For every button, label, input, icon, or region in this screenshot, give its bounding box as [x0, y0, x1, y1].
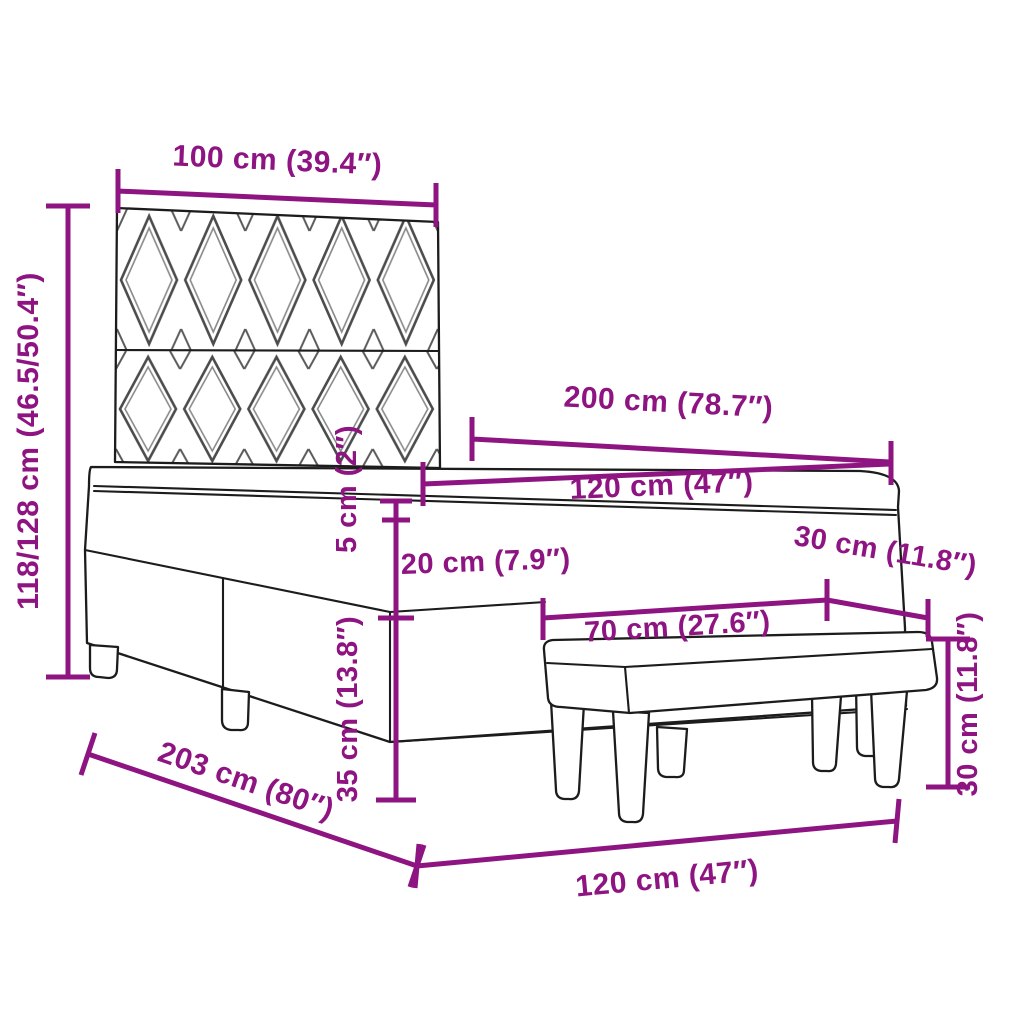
dim-label-total-height: 118/128 cm (46.5/50.4″): [12, 272, 45, 610]
headboard-pattern-bottom: [115, 350, 440, 468]
dim-frame-length: 203 cm (80″): [81, 733, 424, 887]
headboard: [115, 208, 440, 468]
dim-label-base-height: 35 cm (13.8″): [332, 616, 364, 802]
diagram-canvas: 100 cm (39.4″) 118/128 cm (46.5/50.4″) 2…: [0, 0, 1024, 1024]
dim-label-topper-height: 5 cm (2″): [331, 425, 363, 553]
headboard-pattern-top: [116, 208, 439, 351]
headboard-seam: [116, 350, 439, 351]
dim-bench-height: 30 cm (11.8″): [926, 612, 984, 797]
dim-label-bed-length: 200 cm (78.7″): [563, 381, 774, 425]
bench-leg-front-right: [871, 689, 907, 787]
bench-leg-back-left: [551, 701, 584, 799]
bench-leg-back-right: [812, 694, 841, 771]
dim-label-headboard-width: 100 cm (39.4″): [172, 139, 383, 181]
bed-leg-foot-left: [657, 727, 687, 777]
bed-leg-front-middle: [222, 689, 249, 730]
dim-total-height: 118/128 cm (46.5/50.4″): [12, 206, 90, 677]
dim-label-mattress-height: 20 cm (7.9″): [400, 543, 571, 581]
dim-label-frame-length: 203 cm (80″): [154, 735, 339, 826]
bench-leg-front-left: [613, 711, 649, 822]
dim-label-bench-height: 30 cm (11.8″): [952, 612, 984, 797]
dim-frame-width: 120 cm (47″): [415, 799, 899, 903]
dim-label-frame-width: 120 cm (47″): [574, 854, 760, 904]
bed-leg-front-left: [90, 645, 118, 678]
bed-dimension-diagram: 100 cm (39.4″) 118/128 cm (46.5/50.4″) 2…: [0, 0, 1024, 1024]
